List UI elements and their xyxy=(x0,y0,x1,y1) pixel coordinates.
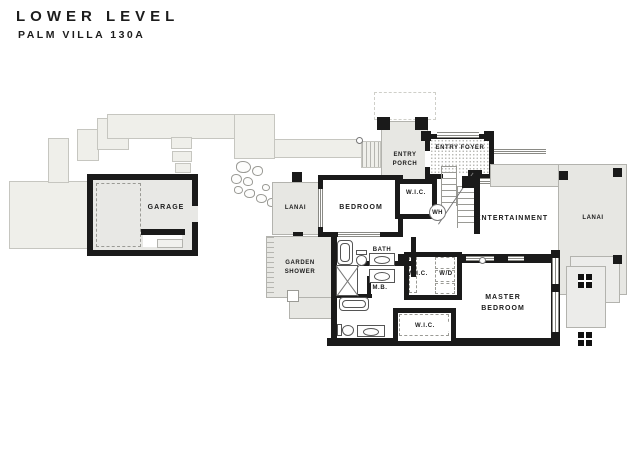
trellis-beam xyxy=(494,149,546,154)
shower-pad xyxy=(287,290,299,302)
driveway-segment xyxy=(48,138,69,183)
stepping-stone xyxy=(231,174,242,184)
floorplan-canvas: LOWER LEVEL PALM VILLA 130A GARAGE LANAI… xyxy=(0,0,640,457)
stepping-stone xyxy=(256,194,267,203)
label-entertainment: ENTERTAINMENT xyxy=(475,214,549,225)
stepping-stone xyxy=(234,186,243,194)
wall-segment xyxy=(474,182,480,234)
label-bedroom: BEDROOM xyxy=(330,203,392,214)
label-lanai-right: LANAI xyxy=(570,214,616,223)
roof-overhang-dashed xyxy=(374,92,436,120)
wall-corner-post xyxy=(421,131,431,141)
stepping-stone xyxy=(244,189,255,198)
column-post xyxy=(377,117,390,130)
label-master-bedroom: MASTER BEDROOM xyxy=(468,293,538,314)
label-washer-dryer: W/D xyxy=(434,270,458,279)
wall-corner-post xyxy=(484,131,494,141)
bathtub-icon xyxy=(342,300,366,308)
stepping-stone xyxy=(236,161,251,173)
label-entry-foyer: ENTRY FOYER xyxy=(431,144,489,153)
garage-parking-dashed xyxy=(96,183,141,247)
water-heater-icon: WH xyxy=(429,204,446,221)
driveway-segment xyxy=(107,114,236,139)
pane-window-icon xyxy=(578,332,592,346)
column-post xyxy=(613,168,622,177)
garage-step xyxy=(172,151,192,162)
garage-step xyxy=(171,137,192,149)
page-subtitle: PALM VILLA 130A xyxy=(18,29,145,41)
column-post xyxy=(559,171,568,180)
sliding-door xyxy=(338,232,380,237)
label-garage: GARAGE xyxy=(140,203,192,214)
page-title: LOWER LEVEL xyxy=(16,8,179,25)
label-wic-hall: W.I.C. xyxy=(403,270,433,279)
sliding-door xyxy=(318,189,323,227)
pane-window-icon xyxy=(578,274,592,288)
label-wic-bedroom: W.I.C. xyxy=(399,189,433,198)
sink-icon xyxy=(374,272,390,281)
entry-walkway xyxy=(274,139,362,158)
label-wic-master: W.I.C. xyxy=(400,322,450,331)
column-post xyxy=(415,117,428,130)
wall-segment xyxy=(411,237,416,277)
toilet-icon xyxy=(342,325,354,336)
column-post xyxy=(613,255,622,264)
washer-dryer-dashed xyxy=(435,257,455,269)
stepping-stone xyxy=(252,166,263,176)
driveway-segment xyxy=(77,129,99,161)
column-post xyxy=(292,172,302,182)
garage-side-door xyxy=(192,206,198,222)
label-garden-shower: GARDEN SHOWER xyxy=(271,259,329,277)
door-opening xyxy=(425,151,430,167)
window xyxy=(552,258,559,284)
label-entry-porch: ENTRY PORCH xyxy=(384,151,426,169)
ceiling-fan-icon xyxy=(479,257,486,264)
washer-dryer-dashed xyxy=(435,283,455,294)
driveway-segment xyxy=(234,114,275,159)
porch-steps xyxy=(361,141,381,168)
sliding-door xyxy=(552,292,559,332)
window xyxy=(437,132,479,138)
garage-step xyxy=(175,163,191,173)
window xyxy=(508,256,524,261)
label-lanai-left: LANAI xyxy=(273,204,318,213)
label-master-bath: M.B. xyxy=(366,284,394,293)
stepping-stone xyxy=(262,184,270,191)
walkway-marker-icon xyxy=(356,137,363,144)
stepping-stone xyxy=(243,177,253,186)
bathtub-icon xyxy=(340,243,350,262)
sink-icon xyxy=(374,256,390,264)
driveway-segment xyxy=(9,181,92,249)
garage-entry-step xyxy=(157,239,183,248)
sink-icon xyxy=(363,328,379,336)
